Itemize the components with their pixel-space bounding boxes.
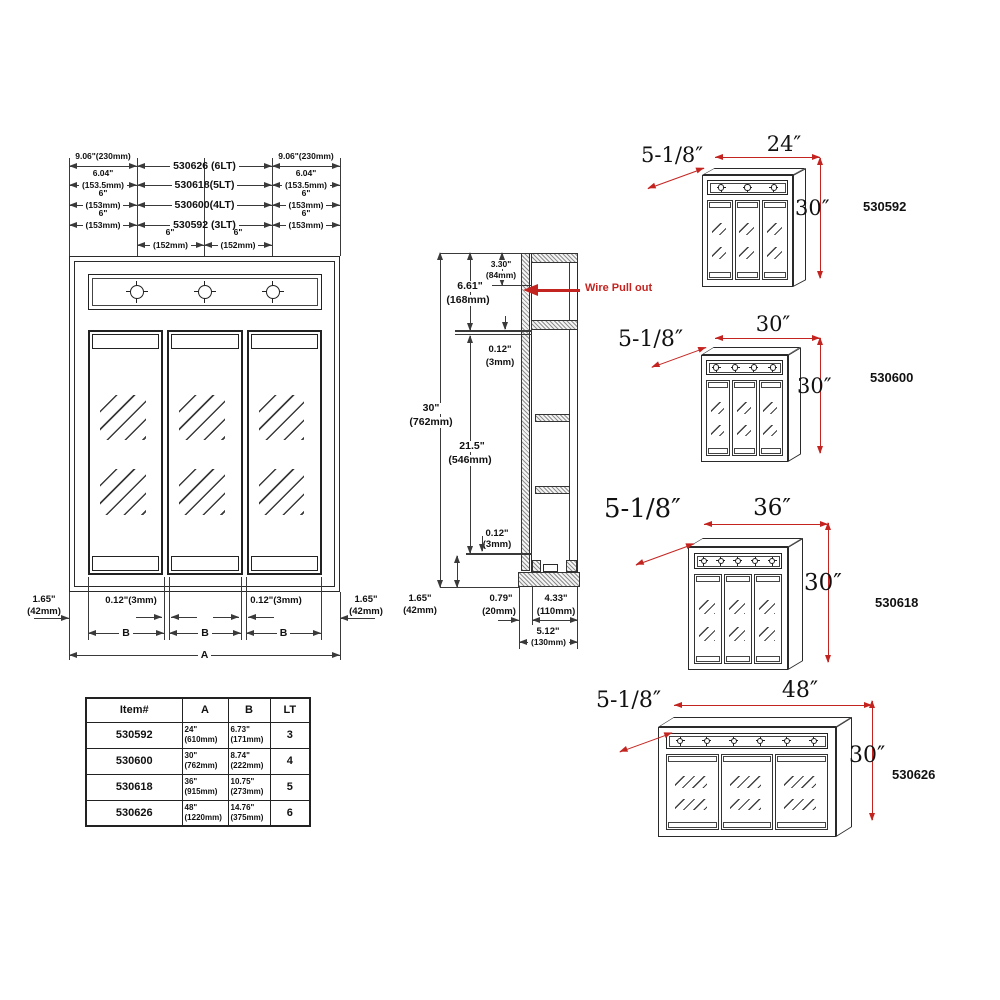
cell-b: 8.74"(222mm): [228, 748, 270, 774]
light-crosshair-icon: [712, 363, 721, 372]
wire-pull-out-arrow: [537, 289, 580, 292]
dim-label: 6.61": [455, 281, 484, 292]
dim-label: 6.04": [93, 169, 114, 178]
dim-line: 530600(4LT): [137, 200, 272, 211]
dim-label: (42mm): [403, 606, 437, 616]
light-crosshair-icon: [729, 737, 738, 746]
dim-012-arrow: [482, 536, 483, 551]
dim-line: 530618(5LT): [137, 180, 272, 191]
mirror-hatch: [712, 223, 727, 235]
mirror-hatch: [711, 402, 725, 414]
height-label: 30″: [795, 197, 830, 219]
light-crosshair-icon: [716, 557, 725, 566]
dim-label: 0.12"(3mm): [105, 596, 157, 606]
light-crosshair-icon: [749, 363, 758, 372]
width-dim: [674, 700, 872, 711]
ref-line: [466, 553, 532, 555]
cell-b: 6.73"(171mm): [228, 722, 270, 748]
dim-label: 6": [99, 209, 108, 218]
mirror-hatch: [759, 627, 775, 641]
cabinet-side-face: [788, 347, 801, 462]
dim-line: (130mm): [519, 637, 578, 648]
cell-item: 530618: [86, 774, 182, 800]
table-row: 530592 24"(610mm) 6.73"(171mm) 3: [86, 722, 310, 748]
light-crosshair-icon: [733, 557, 742, 566]
height-label: 30″: [849, 744, 885, 767]
mirror-door: [754, 574, 782, 664]
ext-line: [340, 158, 341, 256]
mirror-hatch: [712, 247, 727, 259]
dim-label: (3mm): [486, 358, 515, 368]
light-crosshair-icon: [769, 183, 778, 192]
shelf-section: [535, 486, 570, 494]
col-header-item: Item#: [86, 698, 182, 722]
table-row: 530600 30"(762mm) 8.74"(222mm) 4: [86, 748, 310, 774]
ext-line: [440, 253, 531, 254]
dim-arrow: [498, 615, 519, 626]
mirror-door: [167, 330, 242, 575]
dim-label: 1.65": [33, 595, 56, 605]
cabinet-side-face: [793, 168, 806, 287]
light-crosshair-icon: [194, 281, 216, 303]
mirror-doors: [666, 754, 828, 830]
mirror-doors: [694, 574, 782, 664]
light-crosshair-icon: [751, 557, 760, 566]
dim-line: (153mm): [272, 220, 340, 231]
wire-pull-out-label: Wire Pull out: [585, 283, 652, 295]
col-header-b: B: [228, 698, 270, 722]
light-bar: [694, 553, 782, 569]
dim-line: (152mm): [204, 240, 272, 251]
cell-b: 10.75"(273mm): [228, 774, 270, 800]
lightbox-bottom-section: [531, 320, 578, 330]
col-header-lt: LT: [270, 698, 310, 722]
dim-label: 1.65": [409, 594, 432, 604]
dim-line: (152mm): [137, 240, 204, 251]
mirror-hatch: [784, 799, 815, 811]
dim-label: 30": [421, 403, 442, 414]
light-crosshair-icon: [809, 737, 818, 746]
dim-line: 530626 (6LT): [137, 161, 272, 172]
dim-label: 0.79": [490, 594, 513, 604]
depth-dim: [646, 163, 706, 194]
cell-item: 530592: [86, 722, 182, 748]
mirror-hatch: [179, 469, 225, 515]
dim-line-b: B: [246, 628, 321, 639]
col-header-a: A: [182, 698, 228, 722]
base-rail-section: [518, 572, 580, 587]
shelf-section: [535, 414, 570, 422]
ext-line: [340, 592, 341, 660]
depth-label: 5-1/8″: [596, 689, 661, 712]
height-label: 30″: [797, 375, 832, 397]
dim-line: 530592 (3LT): [137, 220, 272, 231]
mirror-door: [732, 380, 756, 456]
dim-label: 9.06"(230mm): [278, 152, 334, 161]
cell-b: 14.76"(375mm): [228, 800, 270, 826]
light-crosshair-icon: [126, 281, 148, 303]
dim-label: 6": [99, 189, 108, 198]
cell-lt: 4: [270, 748, 310, 774]
dim-arrow: [213, 612, 239, 623]
ext-line: [241, 577, 242, 640]
mirror-hatch: [739, 247, 754, 259]
depth-dim: [634, 539, 696, 571]
dim-line: [532, 615, 578, 626]
dim-330: [502, 253, 503, 285]
light-crosshair-icon: [743, 183, 752, 192]
dim-arrow: [136, 612, 162, 623]
light-bar: [666, 733, 828, 749]
mirror-hatch: [699, 627, 715, 641]
item-number: 530600: [870, 371, 913, 385]
dim-label: (168mm): [444, 295, 491, 306]
table-row: 530626 48"(1220mm) 14.76"(375mm) 6: [86, 800, 310, 826]
mirror-hatch: [675, 776, 706, 788]
light-crosshair-icon: [262, 281, 284, 303]
mirror-doors: [706, 380, 783, 456]
item-number: 530618: [875, 596, 918, 610]
mirror-door: [721, 754, 774, 830]
dim-label: 0.12": [489, 345, 512, 355]
mirror-hatch: [675, 799, 706, 811]
dim-label: 21.5": [457, 441, 486, 452]
dim-label: 9.06"(230mm): [75, 152, 131, 161]
table-header-row: Item# A B LT: [86, 698, 310, 722]
dim-label: 6": [302, 189, 311, 198]
cell-lt: 6: [270, 800, 310, 826]
foot-block: [566, 560, 577, 572]
dim-label: 6": [234, 228, 243, 237]
cabinet-spec-drawing: { "drawing": { "top_dims": { "r1": {"sid…: [0, 0, 1000, 1000]
door-section: [521, 253, 530, 571]
cell-a: 30"(762mm): [182, 748, 228, 774]
dim-165: [457, 556, 458, 587]
table-row: 530618 36"(915mm) 10.75"(273mm) 5: [86, 774, 310, 800]
mirror-hatch: [763, 402, 777, 414]
mirror-hatch: [259, 469, 305, 515]
cell-a: 24"(610mm): [182, 722, 228, 748]
cell-a: 48"(1220mm): [182, 800, 228, 826]
depth-label: 5-1/8″: [604, 496, 681, 523]
dim-line: (153mm): [69, 220, 137, 231]
mirror-hatch: [763, 425, 777, 437]
foot-block: [532, 560, 541, 572]
mirror-hatch: [100, 395, 146, 441]
mirror-hatch: [759, 600, 775, 614]
spec-table: Item# A B LT 530592 24"(610mm) 6.73"(171…: [85, 697, 311, 827]
width-label: 24″: [767, 133, 802, 155]
dim-label: 1.65": [355, 595, 378, 605]
light-crosshair-icon: [756, 737, 765, 746]
cabinet-top-face: [658, 717, 852, 727]
dim-label: 6.04": [296, 169, 317, 178]
light-crosshair-icon: [731, 363, 740, 372]
mirror-hatch: [259, 395, 305, 441]
dim-label: 6": [166, 228, 175, 237]
cell-lt: 3: [270, 722, 310, 748]
cell-lt: 5: [270, 774, 310, 800]
dim-line-a: A: [69, 650, 340, 661]
mirror-door: [706, 380, 730, 456]
light-crosshair-icon: [676, 737, 685, 746]
item-number: 530592: [863, 200, 906, 214]
mirror-doors: [88, 330, 322, 575]
dim-label: 6": [302, 209, 311, 218]
light-crosshair-icon: [768, 557, 777, 566]
top-rail-section: [531, 253, 578, 263]
dim-label: 5.12": [537, 627, 560, 637]
mirror-door: [666, 754, 719, 830]
mirror-hatch: [100, 469, 146, 515]
cell-item: 530626: [86, 800, 182, 826]
ext-line: [440, 587, 520, 588]
mirror-hatch: [739, 223, 754, 235]
dim-label: (546mm): [446, 455, 493, 466]
width-label: 48″: [782, 679, 818, 702]
mirror-door: [724, 574, 752, 664]
mirror-door: [762, 200, 788, 280]
light-bar: [88, 274, 322, 310]
mirror-door: [707, 200, 733, 280]
dim-label: 0.12": [486, 529, 509, 539]
mirror-hatch: [767, 247, 782, 259]
mirror-hatch: [699, 600, 715, 614]
dim-arrow: [248, 612, 274, 623]
mirror-door: [735, 200, 761, 280]
cell-item: 530600: [86, 748, 182, 774]
depth-label: 5-1/8″: [641, 144, 703, 166]
dim-label: 0.12"(3mm): [250, 596, 302, 606]
light-crosshair-icon: [699, 557, 708, 566]
mirror-door: [88, 330, 163, 575]
light-bar: [706, 360, 783, 375]
mirror-hatch: [730, 776, 761, 788]
depth-label: 5-1/8″: [618, 328, 683, 351]
ext-line: [164, 577, 165, 640]
mirror-hatch: [730, 799, 761, 811]
dim-line-b: B: [169, 628, 241, 639]
dim-label: (84mm): [484, 271, 518, 280]
cabinet-side-face: [788, 538, 803, 670]
mirror-door: [247, 330, 322, 575]
mirror-hatch: [729, 627, 745, 641]
width-label: 30″: [756, 313, 791, 335]
mirror-door: [775, 754, 828, 830]
light-crosshair-icon: [768, 363, 777, 372]
dim-arrow: [171, 612, 197, 623]
bottom-stop: [543, 564, 558, 572]
height-label: 30″: [804, 571, 842, 595]
mirror-hatch: [737, 425, 751, 437]
dim-label: (762mm): [407, 417, 454, 428]
dim-arrow: [34, 613, 69, 624]
cabinet-top-face: [702, 168, 806, 175]
dim-012-arrow: [505, 316, 506, 329]
dim-label: 3.30": [489, 260, 514, 269]
dim-arrow: [340, 613, 375, 624]
light-crosshair-icon: [717, 183, 726, 192]
ext-line: [321, 577, 322, 640]
cabinet-top-face: [688, 538, 803, 547]
dim-line-b: B: [88, 628, 164, 639]
mirror-doors: [707, 200, 788, 280]
mirror-door: [694, 574, 722, 664]
mirror-hatch: [179, 395, 225, 441]
cabinet-side-face: [836, 717, 852, 837]
cabinet-top-face: [701, 347, 801, 355]
mirror-hatch: [784, 776, 815, 788]
cell-a: 36"(915mm): [182, 774, 228, 800]
light-crosshair-icon: [782, 737, 791, 746]
mirror-hatch: [767, 223, 782, 235]
dim-label: 4.33": [545, 594, 568, 604]
mirror-door: [759, 380, 783, 456]
mirror-hatch: [711, 425, 725, 437]
item-number: 530626: [892, 768, 935, 782]
light-bar: [707, 180, 788, 195]
dim-label: (3mm): [483, 540, 512, 550]
width-label: 36″: [753, 496, 791, 520]
mirror-hatch: [729, 600, 745, 614]
light-crosshair-icon: [702, 737, 711, 746]
mirror-hatch: [737, 402, 751, 414]
